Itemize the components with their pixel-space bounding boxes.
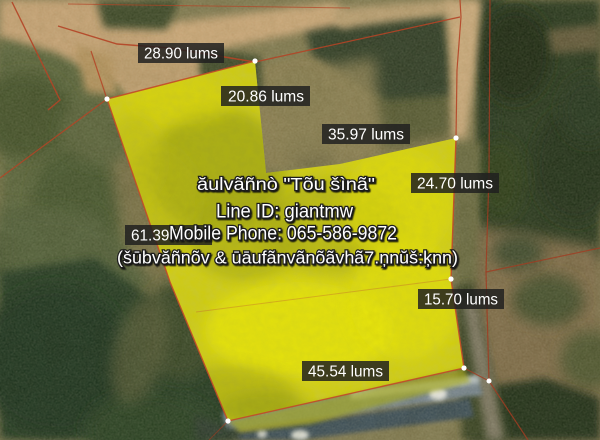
svg-text:Line ID: giantmw: Line ID: giantmw — [216, 202, 353, 223]
svg-text:28.90 lums: 28.90 lums — [144, 46, 218, 63]
svg-text:Mobile Phone: 065-586-9872: Mobile Phone: 065-586-9872 — [169, 224, 397, 245]
svg-text:20.86 lums: 20.86 lums — [228, 89, 304, 106]
svg-text:15.70 lums: 15.70 lums — [424, 292, 498, 309]
svg-text:35.97 lums: 35.97 lums — [328, 127, 404, 144]
svg-text:(šūbvăñnõv & ūāufãnvãnõãvhã7.ņ: (šūbvăñnõv & ūāufãnvãnõãvhã7.ņnŭš:ķnn) — [117, 248, 458, 268]
svg-text:ăulvãñnò "Tõu šìnã": ăulvãñnò "Tõu šìnã" — [197, 174, 375, 194]
svg-text:45.54 lums: 45.54 lums — [308, 364, 383, 381]
svg-text:24.70 lums: 24.70 lums — [417, 176, 493, 193]
